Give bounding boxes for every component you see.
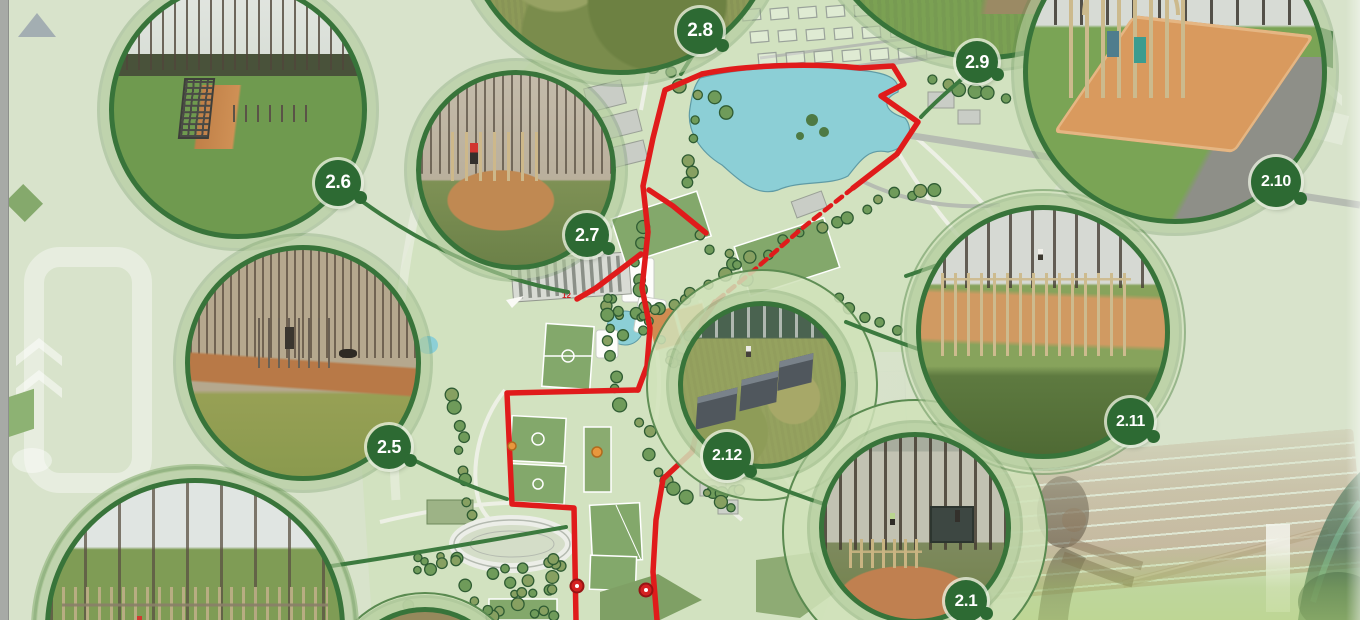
station-badge-2.5: 2.5	[367, 425, 411, 469]
concrete-block	[695, 387, 737, 430]
concrete-block	[777, 353, 813, 391]
climbing-frame	[178, 78, 216, 139]
person-figure	[955, 510, 960, 522]
station-badge-label: 2.7	[575, 225, 599, 246]
balance-posts	[233, 105, 307, 122]
right-frame-strip	[1346, 0, 1360, 620]
station-badge-label: 2.12	[712, 447, 742, 465]
calisthenics-rig	[941, 273, 1131, 356]
station-badge-label: 2.6	[325, 172, 351, 194]
station-badge-label: 2.10	[1261, 173, 1291, 191]
parkour-bars	[258, 318, 335, 368]
station-badge-2.7: 2.7	[565, 213, 609, 257]
calisthenics-rig	[1069, 0, 1192, 98]
station-badge-2.6: 2.6	[315, 160, 361, 206]
station-badge-2.8: 2.8	[677, 8, 723, 54]
station-photo-2.12	[678, 301, 846, 469]
station-badge-2.10: 2.10	[1251, 157, 1301, 207]
station-badge-label: 2.1	[955, 591, 978, 611]
person-figure	[746, 346, 751, 357]
station-badge-label: 2.5	[377, 437, 401, 458]
park-trail-map-poster: 12	[0, 0, 1360, 620]
bar-rack	[62, 587, 329, 620]
dog-figure	[339, 349, 357, 358]
person-figure	[470, 143, 478, 164]
station-badge-2.11: 2.11	[1107, 398, 1154, 445]
person-figure	[285, 327, 294, 350]
concrete-block	[739, 370, 778, 410]
person-figure	[1038, 249, 1043, 260]
hurdle-bars	[849, 539, 922, 568]
station-badge-2.12: 2.12	[703, 432, 751, 480]
station-badge-label: 2.9	[965, 52, 989, 73]
station-badge-label: 2.11	[1116, 413, 1145, 431]
station-badge-label: 2.8	[687, 20, 713, 42]
left-frame-strip	[0, 0, 9, 620]
wooden-posts	[451, 132, 542, 181]
station-badge-2.9: 2.9	[956, 41, 998, 83]
station-badge-2.1: 2.1	[945, 580, 987, 620]
person-figure	[1134, 37, 1146, 63]
person-figure	[1107, 31, 1119, 57]
person-figure	[137, 616, 142, 620]
info-board	[930, 506, 974, 543]
person-figure	[890, 513, 895, 525]
